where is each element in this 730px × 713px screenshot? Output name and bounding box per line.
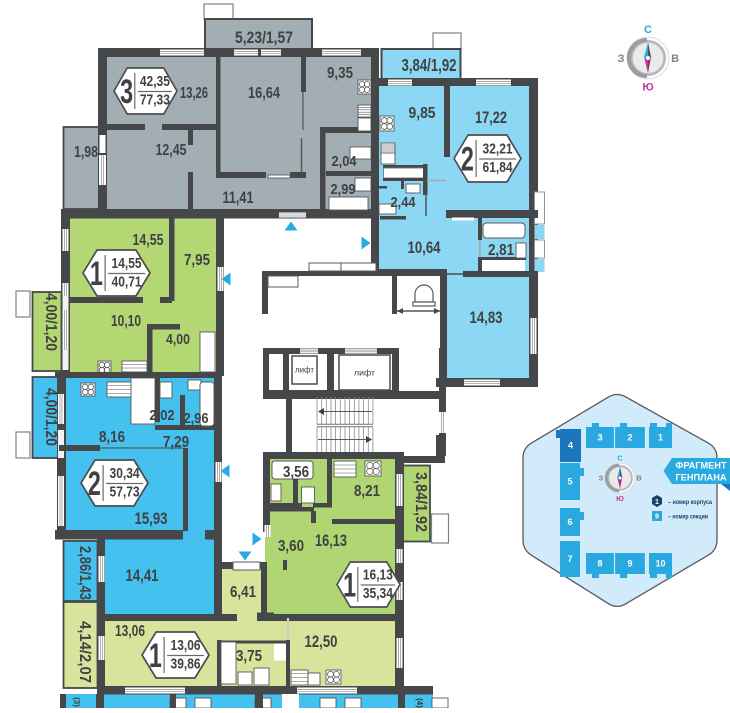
svg-text:77,33: 77,33 (140, 92, 170, 108)
svg-text:2,86/1,43: 2,86/1,43 (76, 546, 93, 600)
svg-text:4,14/2,07: 4,14/2,07 (76, 621, 93, 683)
svg-text:7,29: 7,29 (163, 434, 189, 451)
svg-text:9,85: 9,85 (409, 105, 436, 122)
svg-text:З: З (599, 474, 604, 483)
svg-text:8,16: 8,16 (99, 429, 125, 446)
svg-text:35,34: 35,34 (363, 586, 393, 602)
svg-text:1: 1 (149, 637, 162, 675)
svg-text:13,26: 13,26 (180, 85, 208, 102)
svg-text:– номер секции: – номер секции (668, 514, 708, 521)
svg-text:4,00/1,20: 4,00/1,20 (42, 293, 59, 351)
svg-text:61,84: 61,84 (483, 160, 513, 176)
svg-text:39,86: 39,86 (171, 656, 201, 672)
svg-text:1: 1 (658, 433, 663, 443)
svg-text:– номер корпуса: – номер корпуса (668, 499, 712, 506)
svg-text:6: 6 (567, 517, 572, 527)
svg-text:9,35: 9,35 (327, 65, 353, 82)
svg-text:42,35: 42,35 (140, 74, 170, 90)
svg-text:16,13: 16,13 (315, 532, 347, 550)
svg-text:(4): (4) (415, 698, 424, 708)
svg-text:4: 4 (568, 441, 573, 451)
svg-text:3,56: 3,56 (283, 464, 309, 481)
svg-text:5: 5 (567, 477, 572, 487)
svg-text:(3): (3) (72, 697, 81, 707)
svg-text:В: В (636, 474, 642, 483)
svg-text:2,02: 2,02 (150, 407, 175, 424)
svg-text:2: 2 (461, 141, 474, 179)
svg-text:3,84/1,92: 3,84/1,92 (402, 55, 457, 75)
svg-text:3,60: 3,60 (278, 538, 304, 555)
svg-text:1: 1 (90, 255, 103, 293)
svg-text:10,10: 10,10 (111, 313, 141, 330)
svg-text:9: 9 (627, 559, 632, 569)
svg-text:12,50: 12,50 (305, 633, 338, 651)
svg-text:ФРАГМЕНТ: ФРАГМЕНТ (676, 461, 727, 472)
svg-text:8,21: 8,21 (354, 483, 380, 500)
svg-text:лифт: лифт (295, 366, 314, 375)
svg-text:С: С (617, 453, 623, 462)
svg-text:2,99: 2,99 (331, 181, 356, 198)
svg-text:2,81: 2,81 (488, 242, 514, 259)
svg-text:ГЕНПЛАНА: ГЕНПЛАНА (676, 473, 727, 484)
svg-text:лифт: лифт (354, 369, 375, 378)
svg-text:10: 10 (655, 559, 665, 569)
svg-text:11,41: 11,41 (223, 189, 254, 207)
svg-text:2: 2 (88, 465, 101, 503)
svg-text:14,41: 14,41 (126, 567, 159, 585)
svg-text:16,64: 16,64 (248, 85, 280, 102)
svg-text:8: 8 (597, 559, 602, 569)
svg-text:17,22: 17,22 (475, 109, 507, 127)
svg-text:10,64: 10,64 (408, 239, 442, 257)
svg-text:14,55: 14,55 (112, 256, 142, 272)
svg-text:13,06: 13,06 (115, 623, 145, 640)
svg-text:14,83: 14,83 (470, 309, 503, 327)
svg-text:7,95: 7,95 (184, 252, 210, 269)
svg-text:13,06: 13,06 (171, 638, 201, 654)
svg-text:2,44: 2,44 (391, 194, 417, 211)
svg-text:5,23/1,57: 5,23/1,57 (235, 29, 293, 47)
svg-text:3: 3 (120, 73, 133, 111)
svg-text:Ю: Ю (616, 494, 624, 503)
svg-text:2,96: 2,96 (184, 410, 209, 427)
svg-text:14,55: 14,55 (133, 232, 164, 249)
svg-text:2,04: 2,04 (332, 153, 358, 170)
svg-text:4,00: 4,00 (166, 332, 190, 348)
svg-text:6,41: 6,41 (230, 584, 256, 601)
svg-text:4,00/1,20: 4,00/1,20 (42, 388, 59, 446)
svg-text:3,84/1,92: 3,84/1,92 (412, 472, 429, 532)
svg-text:3,75: 3,75 (236, 648, 262, 665)
svg-text:2: 2 (627, 433, 632, 443)
svg-text:1: 1 (655, 499, 659, 506)
svg-text:16,13: 16,13 (363, 568, 393, 584)
svg-text:40,71: 40,71 (112, 274, 142, 290)
svg-text:57,73: 57,73 (110, 484, 140, 500)
svg-text:15,93: 15,93 (135, 510, 168, 528)
svg-text:1,98: 1,98 (74, 144, 98, 161)
svg-text:З: З (617, 53, 624, 65)
svg-text:30,34: 30,34 (110, 466, 140, 482)
svg-text:В: В (671, 53, 679, 65)
svg-text:3: 3 (597, 433, 602, 443)
svg-text:7: 7 (567, 554, 572, 564)
svg-text:9: 9 (655, 514, 659, 521)
svg-text:Ю: Ю (642, 82, 653, 94)
svg-text:1: 1 (343, 567, 356, 605)
svg-text:С: С (644, 24, 652, 36)
svg-text:12,45: 12,45 (156, 142, 187, 159)
svg-text:32,21: 32,21 (483, 142, 513, 158)
